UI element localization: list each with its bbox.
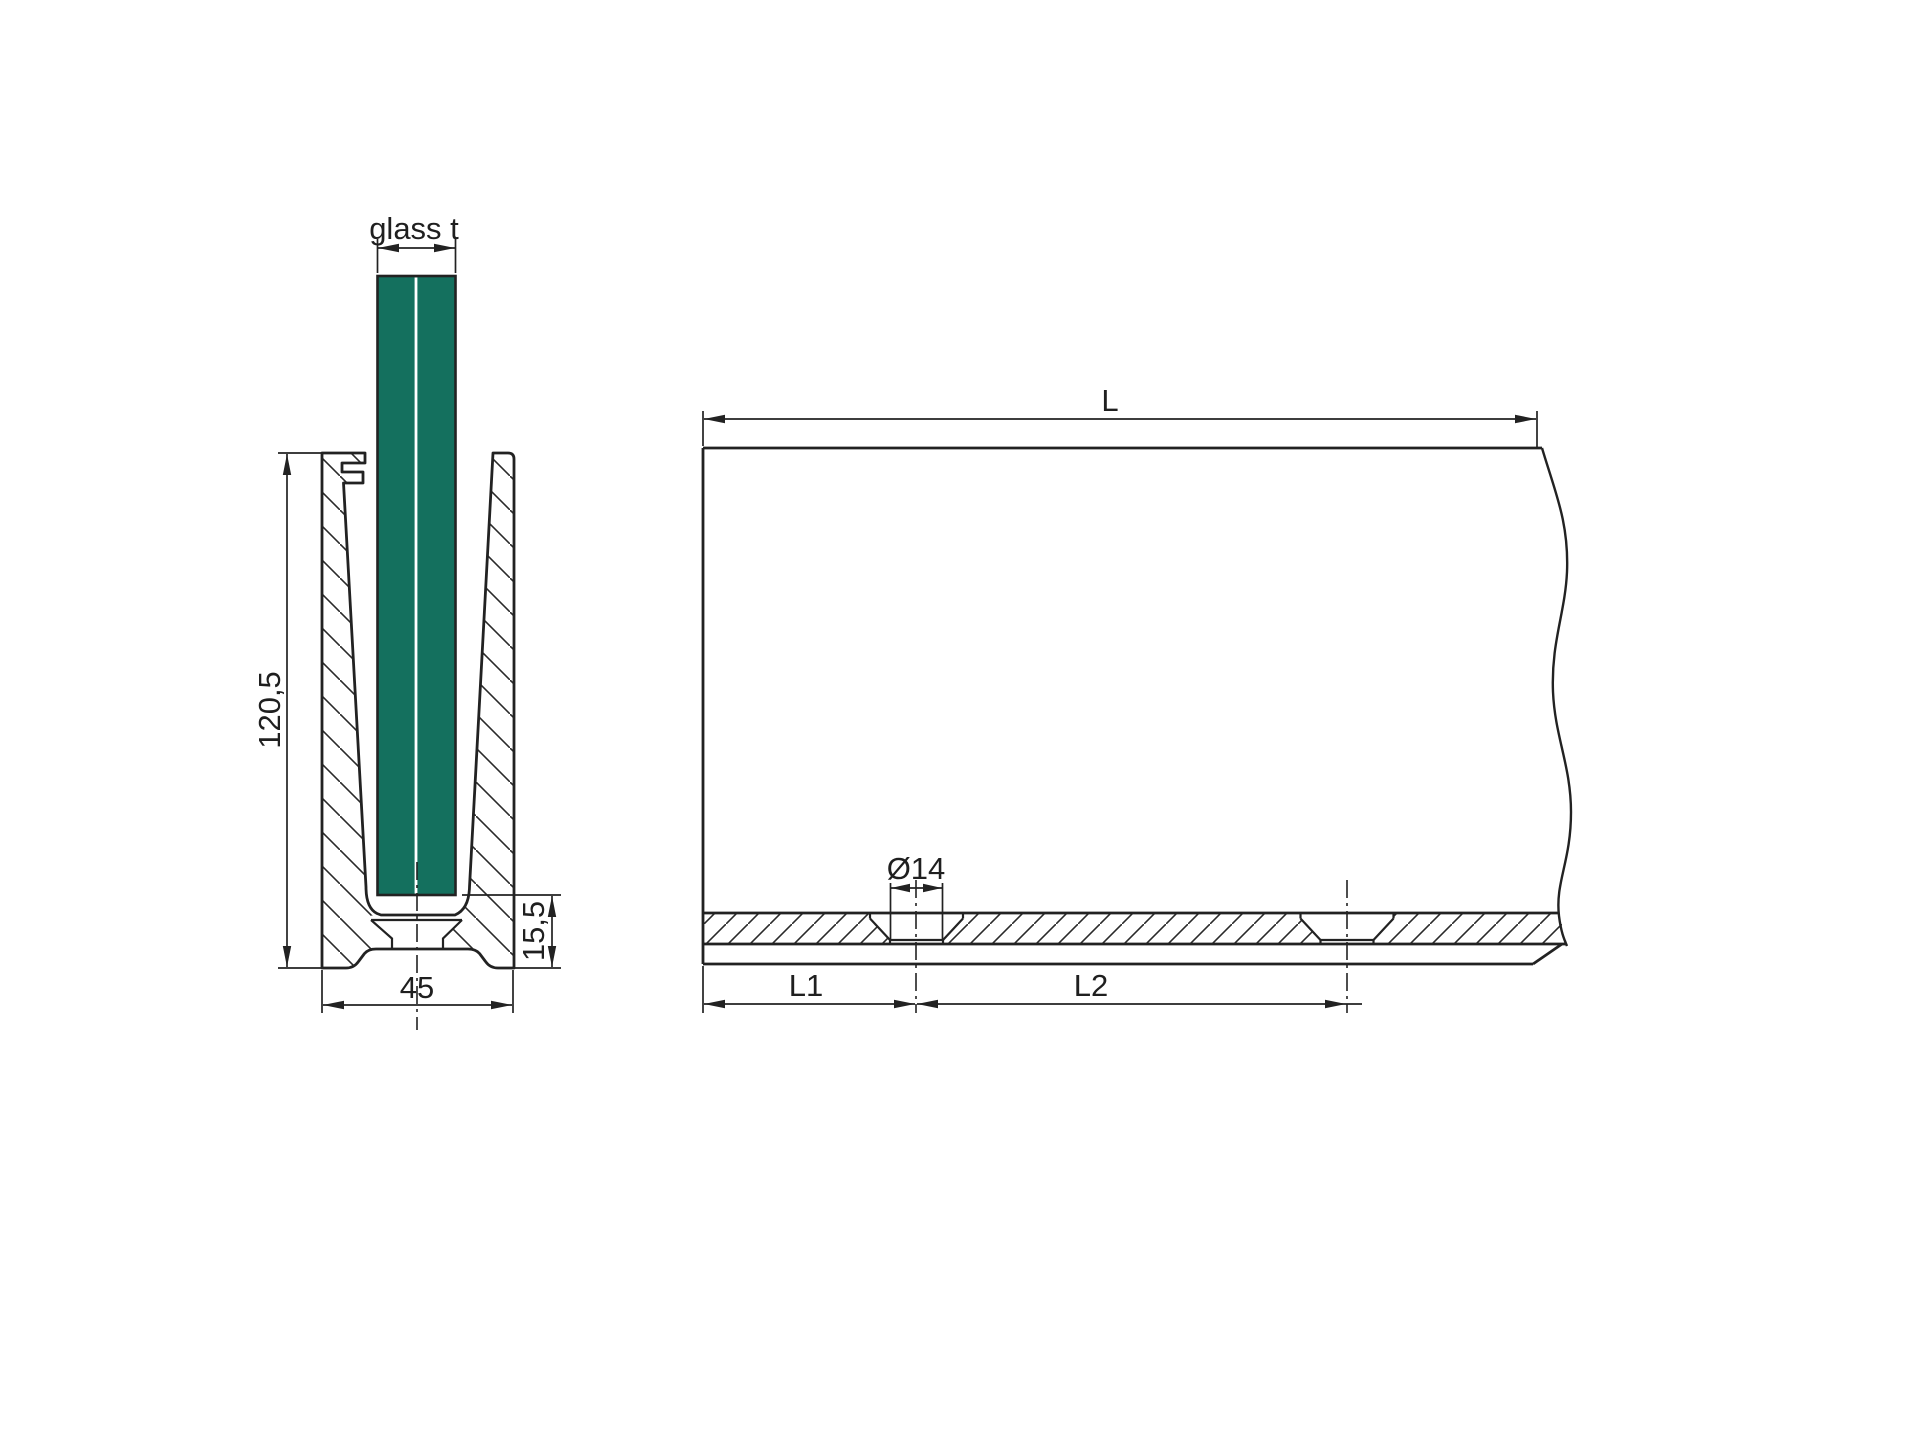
- side-view: L Ø14 L1 L2: [703, 383, 1571, 1013]
- base-height-label: 15,5: [516, 901, 551, 961]
- technical-drawing: glass t 120,5 45 15,5: [0, 0, 1920, 1440]
- break-line: [1542, 448, 1571, 946]
- section-view: glass t 120,5 45 15,5: [252, 211, 561, 1030]
- dim-length: [703, 411, 1537, 447]
- length-label: L: [1101, 383, 1118, 418]
- technical-drawing-page: glass t 120,5 45 15,5: [0, 0, 1920, 1440]
- l1-label: L1: [789, 968, 823, 1003]
- base-width-label: 45: [400, 970, 434, 1005]
- profile-height-label: 120,5: [252, 671, 287, 749]
- l2-label: L2: [1074, 968, 1108, 1003]
- side-outline: [703, 448, 1566, 964]
- dim-l2: [917, 1000, 1362, 1008]
- glass-interlayer: [415, 278, 418, 894]
- glass-t-label: glass t: [369, 211, 459, 246]
- hole-diameter-label: Ø14: [887, 851, 946, 886]
- base-band-hatched: [703, 913, 1567, 944]
